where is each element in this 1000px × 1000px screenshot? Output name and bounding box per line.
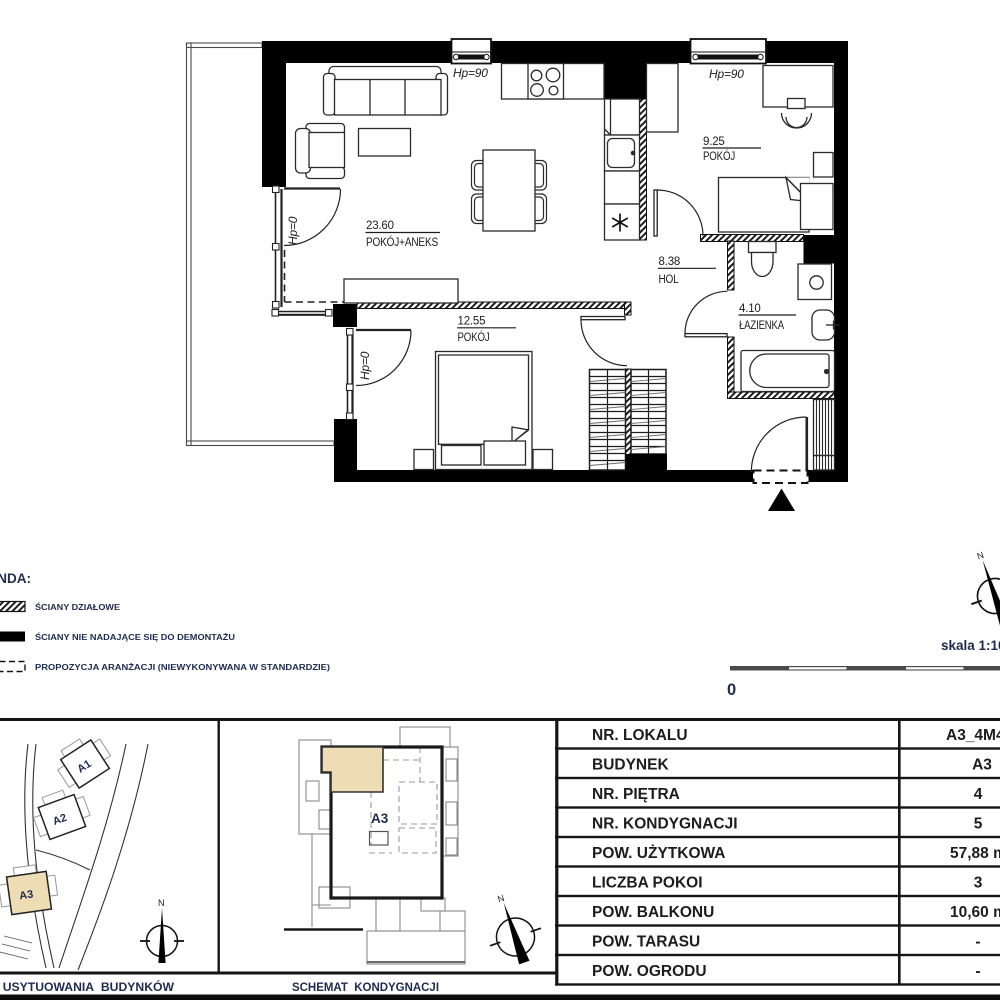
svg-text:LICZBA POKOI: LICZBA POKOI — [592, 875, 703, 892]
svg-text:A3: A3 — [371, 811, 389, 826]
svg-text:NR. PIĘTRA: NR. PIĘTRA — [592, 786, 680, 803]
svg-text:LEGENDA:: LEGENDA: — [0, 571, 31, 586]
svg-text:-: - — [975, 963, 980, 980]
svg-text:POW. UŻYTKOWA: POW. UŻYTKOWA — [592, 845, 725, 862]
svg-text:0: 0 — [727, 681, 736, 699]
svg-text:NR. KONDYGNACJI: NR. KONDYGNACJI — [592, 816, 738, 833]
svg-text:3: 3 — [974, 875, 983, 892]
svg-text:Hp=90: Hp=90 — [709, 67, 744, 81]
svg-text:POW. BALKONU: POW. BALKONU — [592, 904, 714, 921]
svg-text:Hp=0: Hp=0 — [358, 351, 372, 380]
svg-text:ŁAZIENKA: ŁAZIENKA — [739, 320, 784, 332]
svg-text:Hp=0: Hp=0 — [286, 216, 300, 245]
svg-text:BUDYNEK: BUDYNEK — [592, 757, 669, 774]
svg-text:A3_4M4: A3_4M4 — [946, 727, 1000, 744]
svg-text:8.38: 8.38 — [659, 256, 681, 268]
svg-text:4.10: 4.10 — [739, 303, 761, 315]
svg-text:A3: A3 — [972, 757, 992, 774]
svg-text:-: - — [975, 934, 980, 951]
svg-text:ŚCIANY DZIAŁOWE: ŚCIANY DZIAŁOWE — [35, 603, 121, 612]
svg-text:10,60 m²: 10,60 m² — [950, 904, 1000, 921]
svg-text:HOL: HOL — [659, 274, 680, 286]
svg-text:POW. OGRODU: POW. OGRODU — [592, 963, 707, 980]
svg-text:A3: A3 — [19, 888, 35, 902]
svg-text:POKÓJ+ANEKS: POKÓJ+ANEKS — [366, 236, 438, 249]
svg-text:skala 1:100: skala 1:100 — [941, 638, 1000, 653]
svg-text:ŚCIANY NIE NADAJĄCE SIĘ DO DEM: ŚCIANY NIE NADAJĄCE SIĘ DO DEMONTAŻU — [35, 633, 235, 642]
svg-text:N: N — [158, 898, 165, 908]
svg-text:POKÓJ: POKÓJ — [703, 150, 735, 163]
svg-text:9.25: 9.25 — [703, 136, 725, 148]
svg-text:Hp=90: Hp=90 — [453, 66, 488, 80]
svg-text:12.55: 12.55 — [458, 316, 486, 328]
svg-text:PROPOZYCJA ARANŻACJI (NIEWYKON: PROPOZYCJA ARANŻACJI (NIEWYKONYWANA W ST… — [35, 663, 330, 672]
svg-text:POW. TARASU: POW. TARASU — [592, 934, 700, 951]
svg-text:NR. LOKALU: NR. LOKALU — [592, 727, 688, 744]
svg-text:23.60: 23.60 — [366, 220, 394, 232]
svg-text:SCHEMAT KONDYGNACJI: SCHEMAT KONDYGNACJI — [292, 980, 439, 994]
svg-text:5: 5 — [974, 816, 983, 833]
svg-text:POKÓJ: POKÓJ — [458, 331, 490, 344]
svg-text:57,88 m²: 57,88 m² — [950, 845, 1000, 862]
svg-text:4: 4 — [974, 786, 983, 803]
svg-text:SCHEMAT USYTUOWANIA BUDYNKÓW: SCHEMAT USYTUOWANIA BUDYNKÓW — [0, 979, 174, 994]
